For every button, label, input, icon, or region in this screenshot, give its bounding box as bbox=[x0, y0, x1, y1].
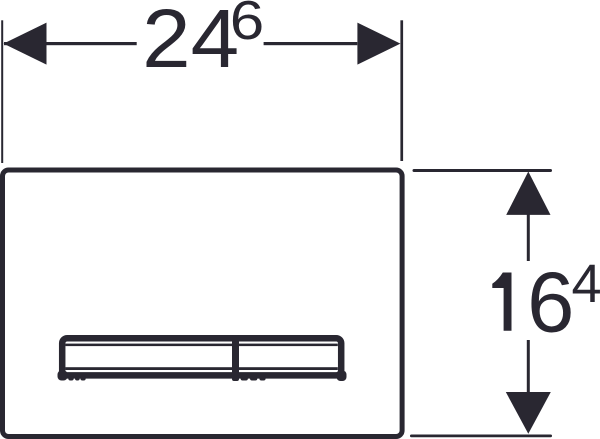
svg-text:24: 24 bbox=[142, 0, 239, 85]
svg-text:6: 6 bbox=[230, 0, 264, 51]
svg-text:4: 4 bbox=[572, 254, 600, 314]
svg-text:6: 6 bbox=[527, 256, 574, 351]
